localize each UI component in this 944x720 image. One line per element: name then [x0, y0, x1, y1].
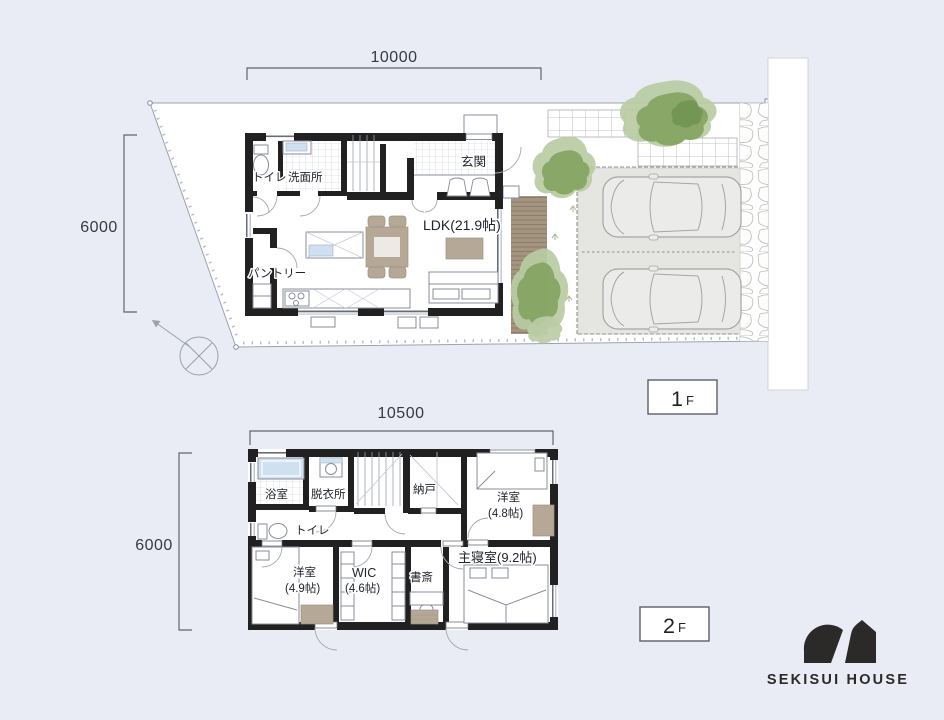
north-compass-icon [152, 320, 218, 375]
room-label-toilet-1f: トイレ [252, 172, 287, 184]
room-label-wic-size: (4.6帖) [345, 581, 380, 595]
dimension-bracket-2f-top [250, 431, 553, 445]
dimension-2f-left: 6000 [135, 537, 173, 554]
room-label-pantry-1f: パントリー [248, 267, 306, 280]
brand-name: SEKISUI HOUSE [767, 672, 909, 688]
road [768, 58, 808, 390]
room-label-bedroom-b-size: (4.9帖) [285, 581, 320, 595]
bed-single-48 [477, 453, 547, 489]
room-label-storage-2f: 納戸 [413, 483, 436, 496]
kitchen-counter [283, 289, 410, 308]
room-label-master-2f: 主寝室(9.2帖) [458, 550, 537, 565]
room-label-bedroom-a-name: 洋室 [497, 490, 520, 504]
washing-machine [320, 458, 342, 477]
bathtub [258, 458, 304, 479]
dimension-2f-top: 10500 [378, 405, 425, 422]
kitchen-island [306, 232, 363, 258]
floor-badge-1f-number: 1 [671, 387, 683, 411]
car-icon [603, 266, 741, 332]
floor-badge-2f: 2 F [640, 607, 709, 641]
stone-path-texture [740, 103, 768, 341]
boundary-marker [148, 101, 153, 106]
bed-double-master [464, 565, 548, 623]
room-label-bathroom-2f: 浴室 [265, 487, 288, 501]
car-icon [603, 174, 741, 240]
sekisui-house-logo: SEKISUI HOUSE [767, 620, 909, 688]
room-label-entrance-1f: 玄関 [461, 154, 486, 169]
floorplan-canvas: トイレ 洗面所 玄関 LDK(21.9帖) パントリー 10000 6000 1… [0, 0, 944, 720]
floor-badge-2f-suffix: F [678, 620, 686, 635]
ac-unit [398, 317, 416, 328]
boundary-marker [234, 345, 239, 350]
floorplan-page: { "colors": { "background": "#e9ecf4", "… [0, 0, 944, 720]
dimension-1f-left: 6000 [80, 219, 118, 236]
site-plan-1f: トイレ 洗面所 玄関 LDK(21.9帖) パントリー 10000 6000 1… [80, 49, 808, 414]
room-label-bedroom-b-name: 洋室 [293, 565, 316, 579]
room-label-ldk-1f: LDK(21.9帖) [423, 217, 501, 233]
ac-unit [311, 317, 335, 327]
floor-badge-1f: 1 F [648, 380, 717, 414]
toilet-fixture-1f [254, 145, 269, 175]
room-label-bedroom-a-size: (4.8帖) [488, 506, 523, 520]
tree-icon [620, 80, 717, 146]
deck-step [503, 186, 519, 198]
sekisui-house-logo-icon [845, 620, 876, 663]
living-table [446, 238, 483, 259]
dimension-bracket-2f-left [179, 453, 192, 630]
floor-badge-1f-suffix: F [686, 393, 694, 408]
floor-badge-2f-number: 2 [663, 614, 675, 638]
entrance-porch [464, 115, 497, 135]
pantry-shelf [253, 284, 271, 308]
dresser [533, 505, 554, 536]
dresser [301, 605, 333, 624]
dimension-bracket-1f-left [124, 135, 137, 312]
dimension-bracket-1f-top [247, 68, 541, 80]
toilet-fixture-2f [258, 524, 287, 540]
room-label-washroom-1f: 洗面所 [288, 171, 323, 184]
floor-plan-2f: 浴室 脱衣所 納戸 洋室 (4.8帖) トイレ 洋室 (4.9帖) WIC (4… [135, 405, 709, 650]
room-label-wic-name: WIC [352, 566, 376, 580]
room-label-toilet-2f: トイレ [295, 525, 330, 537]
room-label-study-2f: 書斎 [410, 570, 433, 584]
sofa [429, 272, 498, 303]
room-label-dressing-2f: 脱衣所 [311, 487, 346, 501]
ac-unit [420, 317, 438, 328]
dimension-1f-top: 10000 [371, 49, 418, 66]
sekisui-house-logo-icon [804, 625, 843, 663]
washroom-sink [286, 143, 307, 151]
